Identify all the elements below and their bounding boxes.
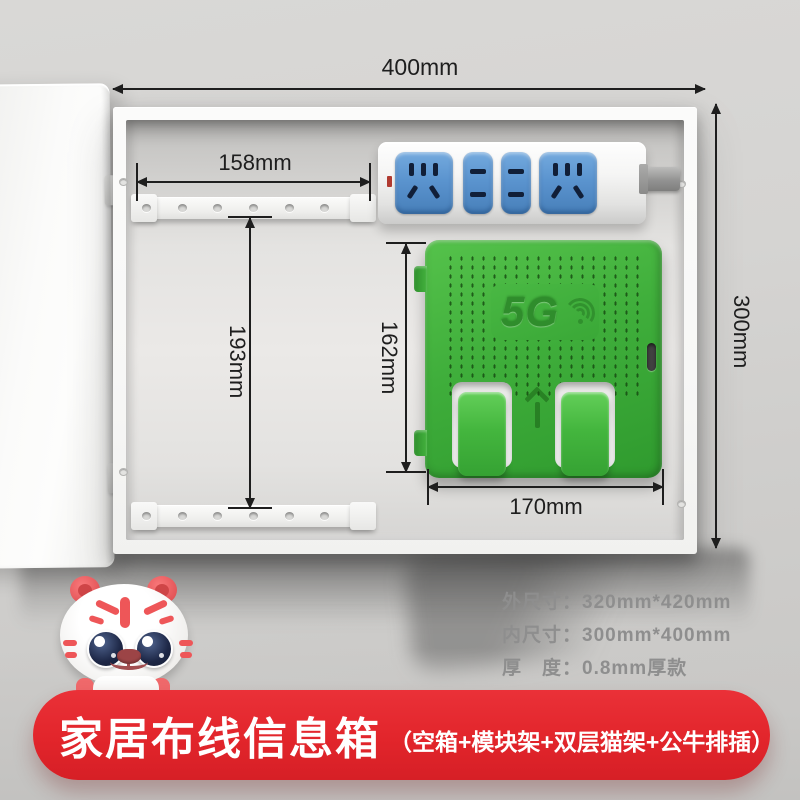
socket-5hole-icon <box>395 152 453 214</box>
banner-title: 家居布线信息箱 <box>59 703 381 767</box>
rail-hole <box>213 512 222 520</box>
dim-label-top-width: 400mm <box>330 54 510 81</box>
tiger-stripe <box>65 652 77 658</box>
cabinet-door <box>0 83 115 569</box>
rail-hole <box>285 204 294 212</box>
rail-hole <box>178 204 187 212</box>
rail-hole <box>320 204 329 212</box>
tiger-nose <box>117 649 141 664</box>
rail-hole <box>249 512 258 520</box>
rail-hole <box>213 204 222 212</box>
cable-gland <box>644 167 680 191</box>
cabinet-box: 5G <box>113 107 697 554</box>
up-arrow-icon <box>527 388 551 432</box>
spec-inner-size: 内尺寸：300mm*400mm <box>502 619 731 652</box>
spec-outer-size: 外尺寸：320mm*420mm <box>502 586 731 619</box>
socket-5hole-icon <box>539 152 597 214</box>
socket-2slot-icon <box>463 152 493 214</box>
dim-label-right-height: 300mm <box>729 295 753 368</box>
tiger-stripe <box>143 599 169 616</box>
arrowhead <box>695 84 706 94</box>
holder-hook-left <box>452 382 512 468</box>
tiger-head <box>60 584 188 686</box>
power-strip <box>378 142 646 224</box>
rail-hole <box>320 512 329 520</box>
rail-hole <box>142 512 151 520</box>
tiger-mascot <box>52 572 196 702</box>
holder-tab <box>414 266 427 292</box>
dim-line-top-width <box>113 88 705 90</box>
tiger-stripe <box>63 640 77 646</box>
holder-tab <box>414 430 427 456</box>
mounting-rail-bottom <box>135 505 372 527</box>
power-indicator-light <box>387 176 392 187</box>
tiger-stripe <box>179 640 193 646</box>
rail-hole <box>285 512 294 520</box>
spec-thickness: 厚 度：0.8mm厚款 <box>502 652 731 685</box>
tiger-stripe <box>95 599 121 616</box>
product-title-banner: 家居布线信息箱 （空箱+模块架+双层猫架+公牛排插） <box>33 690 770 780</box>
holder-side-slot <box>647 343 656 371</box>
frame-screw <box>677 500 686 508</box>
rail-hole <box>178 512 187 520</box>
frame-screw <box>119 468 128 476</box>
tiger-stripe <box>88 615 104 625</box>
arrowhead <box>711 103 721 114</box>
dim-line-right-height <box>715 104 717 548</box>
mounting-rail-top <box>135 197 372 219</box>
spec-block: 外尺寸：320mm*420mm 内尺寸：300mm*400mm 厚 度：0.8m… <box>502 586 731 685</box>
holder-hook-right <box>555 382 615 468</box>
tiger-stripe <box>158 615 174 625</box>
arrowhead <box>112 84 123 94</box>
router-holder: 5G <box>425 240 662 478</box>
rail-hole <box>356 204 365 212</box>
product-scene: 5G 400mm <box>0 0 800 800</box>
rail-hole <box>142 204 151 212</box>
frame-screw <box>119 178 128 186</box>
wifi-icon <box>563 292 597 326</box>
banner-subtitle: （空箱+模块架+双层猫架+公牛排插） <box>389 723 774 757</box>
rail-hole <box>249 204 258 212</box>
holder-logo-plate: 5G <box>491 284 599 340</box>
socket-2slot-icon <box>501 152 531 214</box>
tiger-stripe <box>120 597 130 628</box>
rail-hole <box>356 512 365 520</box>
logo-5g: 5G <box>501 288 559 336</box>
tiger-stripe <box>180 652 192 658</box>
